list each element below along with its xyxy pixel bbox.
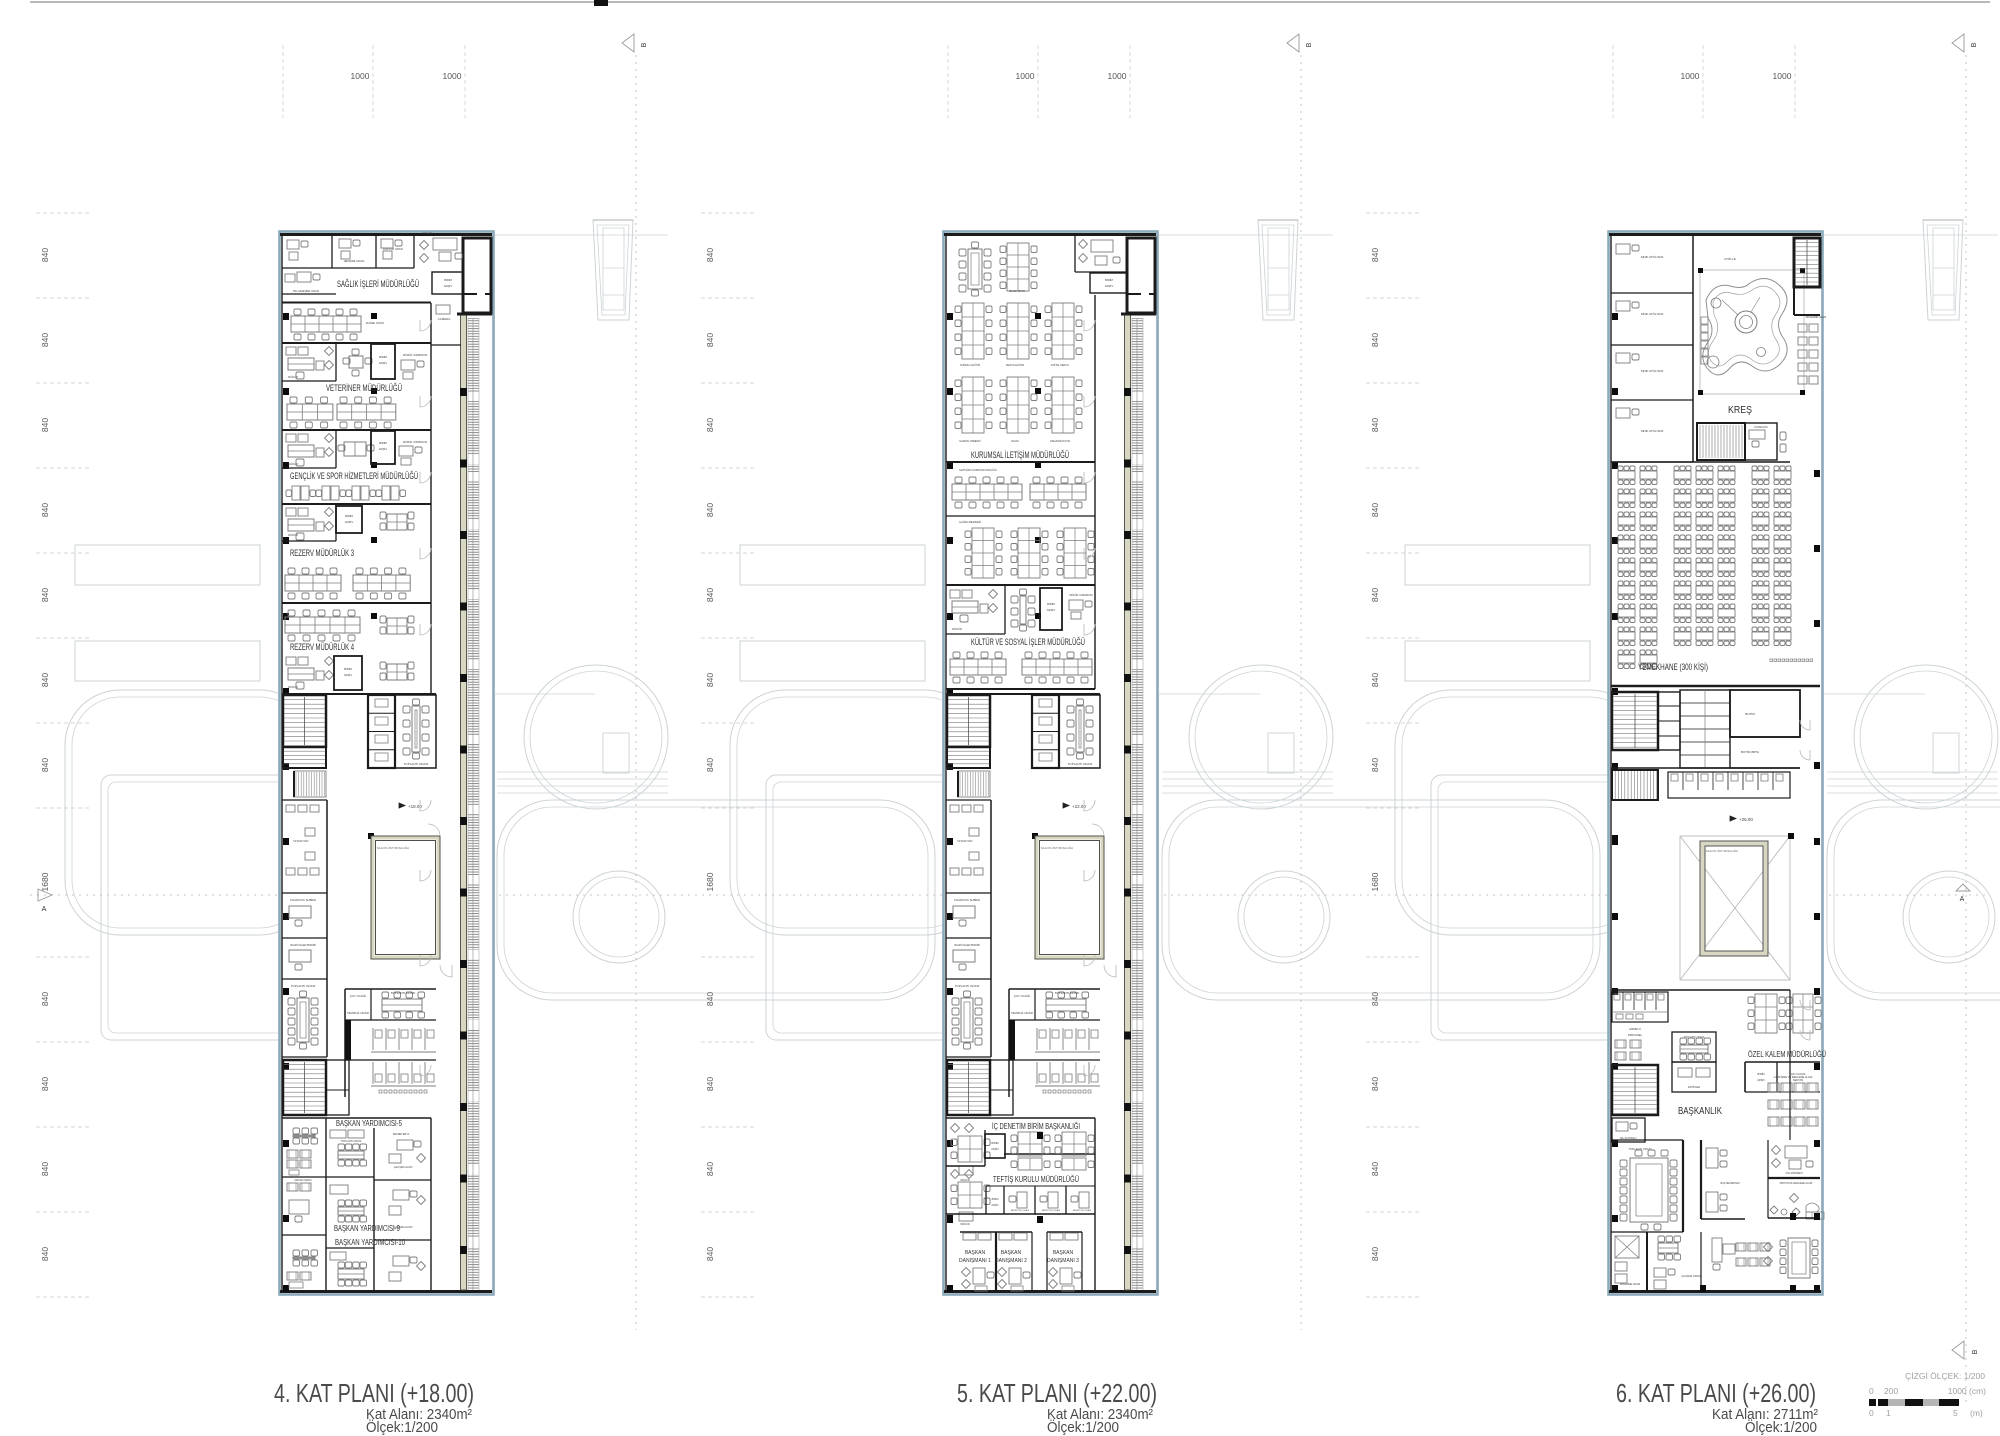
svg-text:ARŞİV: ARŞİV (379, 446, 388, 451)
svg-text:BİRİM: BİRİM (379, 440, 387, 445)
svg-text:840: 840 (40, 673, 50, 687)
svg-text:İÇ DENETİM BİRİM BAŞKANLIĞI: İÇ DENETİM BİRİM BAŞKANLIĞI (992, 1121, 1080, 1131)
svg-text:BİRİM: BİRİM (1105, 277, 1113, 282)
svg-text:840: 840 (705, 248, 715, 262)
svg-text:840: 840 (705, 503, 715, 517)
svg-text:840: 840 (705, 333, 715, 347)
svg-text:DANIŞMANI 1: DANIŞMANI 1 (959, 1258, 991, 1264)
svg-text:ÇİZGİ ÖLÇEK: 1/200: ÇİZGİ ÖLÇEK: 1/200 (1905, 1371, 1985, 1381)
svg-text:840: 840 (1370, 248, 1380, 262)
svg-text:BAŞKAN: BAŞKAN (1053, 1250, 1074, 1256)
svg-text:1000 (cm): 1000 (cm) (1948, 1386, 1986, 1396)
svg-text:KIZILAY: KIZILAY (422, 231, 432, 235)
svg-text:SAĞLIK İŞLERİ MÜDÜRLÜĞÜ: SAĞLIK İŞLERİ MÜDÜRLÜĞÜ (337, 279, 419, 289)
svg-text:BAŞKAN: BAŞKAN (965, 1250, 986, 1256)
svg-text:840: 840 (705, 673, 715, 687)
svg-text:Ölçek:1/200: Ölçek:1/200 (1745, 1418, 1817, 1436)
svg-text:SINIF ATÖLYESİ: SINIF ATÖLYESİ (1641, 428, 1664, 433)
svg-text:MÜFETTİŞ ODASI: MÜFETTİŞ ODASI (1042, 1209, 1061, 1212)
svg-text:840: 840 (705, 588, 715, 602)
svg-text:ARŞİV: ARŞİV (345, 519, 354, 524)
svg-text:BAŞKAN YARDIMCISI-10: BAŞKAN YARDIMCISI-10 (335, 1237, 405, 1247)
svg-text:ÇAY OCAĞI: ÇAY OCAĞI (350, 993, 367, 998)
svg-text:MÜDÜR: MÜDÜR (288, 375, 298, 379)
svg-text:MÜDÜR YARDIMCISI: MÜDÜR YARDIMCISI (403, 441, 428, 444)
svg-text:ORGANİZASYON: ORGANİZASYON (1050, 440, 1070, 443)
svg-text:ARŞİV: ARŞİV (444, 283, 453, 288)
svg-text:KURUMSAL İLETİŞİM MÜDÜRLÜĞÜ: KURUMSAL İLETİŞİM MÜDÜRLÜĞÜ (971, 450, 1069, 460)
svg-text:MÜDÜR: MÜDÜR (952, 627, 962, 631)
svg-text:MÜDÜR: MÜDÜR (288, 685, 298, 689)
svg-text:DİNLENME ODASI: DİNLENME ODASI (1620, 1283, 1641, 1286)
svg-text:1000: 1000 (443, 71, 462, 81)
svg-text:DİNLENME ODASI: DİNLENME ODASI (1806, 316, 1827, 319)
svg-text:MÜDÜR: MÜDÜR (960, 1223, 969, 1226)
svg-text:SÜREKLİ EĞİTİM: SÜREKLİ EĞİTİM (960, 364, 980, 367)
svg-text:BİRİM: BİRİM (1047, 601, 1055, 606)
svg-text:ARŞİV: ARŞİV (344, 672, 353, 677)
svg-text:1: 1 (1886, 1408, 1891, 1418)
svg-text:İDARİ OFİS: İDARİ OFİS (1009, 288, 1025, 293)
svg-text:MEDYA EĞİTİM: MEDYA EĞİTİM (1006, 364, 1024, 367)
svg-text:TOPLANTI ODASI: TOPLANTI ODASI (404, 762, 429, 766)
svg-text:840: 840 (1370, 758, 1380, 772)
svg-text:ÖZL.MÜDİRESİ: ÖZL.MÜDİRESİ (1785, 1172, 1802, 1175)
svg-text:840: 840 (40, 758, 50, 772)
svg-text:+26.00: +26.00 (1739, 817, 1753, 822)
svg-text:DANIŞMANI 2: DANIŞMANI 2 (995, 1258, 1027, 1264)
svg-text:KONSOLOS: KONSOLOS (1754, 426, 1768, 429)
svg-text:İDARİ İŞLER BİRİMİ: İDARİ İŞLER BİRİMİ (290, 942, 316, 947)
svg-text:840: 840 (40, 503, 50, 517)
svg-text:840: 840 (1370, 1077, 1380, 1091)
svg-text:SINIF ATÖLYESİ: SINIF ATÖLYESİ (1641, 368, 1664, 373)
svg-text:CAMERA: CAMERA (438, 317, 451, 321)
svg-text:SEKRETERYA: SEKRETERYA (393, 1133, 410, 1136)
svg-text:ÇALIŞMA ALANI: ÇALIŞMA ALANI (394, 1166, 413, 1169)
svg-text:5. KAT PLANI (+22.00): 5. KAT PLANI (+22.00) (957, 1378, 1157, 1408)
svg-text:840: 840 (705, 758, 715, 772)
svg-text:İDARİ İŞLER BİRİMİ: İDARİ İŞLER BİRİMİ (954, 942, 980, 947)
svg-text:840: 840 (1370, 1162, 1380, 1176)
svg-text:SALON ÜST BOŞLUĞU: SALON ÜST BOŞLUĞU (1041, 845, 1073, 850)
svg-text:BİRİM: BİRİM (444, 277, 452, 282)
svg-text:ARŞİV: ARŞİV (379, 360, 388, 365)
svg-text:YEMEKHANE (300 KİŞİ): YEMEKHANE (300 KİŞİ) (1638, 662, 1708, 672)
svg-text:GENÇLİK VE SPOR HİZMETLERİ MÜD: GENÇLİK VE SPOR HİZMETLERİ MÜDÜRLÜĞÜ (290, 471, 418, 481)
svg-text:MÜDÜR YARDIMCISI: MÜDÜR YARDIMCISI (1069, 594, 1093, 597)
svg-text:KREŞ: KREŞ (1728, 405, 1752, 416)
svg-text:TOPLANTI ODASI: TOPLANTI ODASI (391, 991, 416, 995)
svg-text:(m): (m) (1970, 1408, 1983, 1418)
svg-text:840: 840 (705, 1162, 715, 1176)
svg-text:BAŞKAN YARDIMCISI-9: BAŞKAN YARDIMCISI-9 (334, 1223, 400, 1233)
svg-text:840: 840 (1370, 992, 1380, 1006)
svg-text:A: A (1960, 896, 1965, 903)
svg-text:B: B (1971, 42, 1978, 47)
svg-text:5: 5 (1953, 1408, 1958, 1418)
svg-text:840: 840 (40, 248, 50, 262)
svg-text:GÖRÜŞME VE BEKLEME ALANI: GÖRÜŞME VE BEKLEME ALANI (1774, 1075, 1813, 1079)
svg-text:ATÖLYE: ATÖLYE (1724, 257, 1735, 261)
svg-text:0: 0 (1869, 1408, 1874, 1418)
svg-text:BİRİM: BİRİM (379, 354, 387, 359)
svg-text:ÇALIŞMA ODASI: ÇALIŞMA ODASI (1681, 1275, 1701, 1278)
svg-text:BOTİM: BOTİM (1745, 711, 1755, 716)
svg-text:TEFTİŞ KURULU MÜDÜRLÜĞÜ: TEFTİŞ KURULU MÜDÜRLÜĞÜ (993, 1174, 1079, 1184)
svg-text:840: 840 (40, 992, 50, 1006)
svg-text:BİRİM: BİRİM (345, 513, 353, 518)
svg-text:840: 840 (705, 418, 715, 432)
svg-text:BAŞKAN YARDIMCISI-5: BAŞKAN YARDIMCISI-5 (336, 1118, 402, 1128)
svg-text:DANIŞMANI 3: DANIŞMANI 3 (1047, 1258, 1079, 1264)
svg-text:ÇAĞRI MERKEZİ: ÇAĞRI MERKEZİ (959, 519, 981, 524)
svg-text:A: A (42, 906, 47, 913)
svg-text:B: B (1972, 1349, 1979, 1354)
svg-text:840: 840 (1370, 333, 1380, 347)
svg-text:1000: 1000 (1108, 71, 1127, 81)
svg-text:1680: 1680 (40, 872, 50, 891)
svg-text:4. KAT PLANI (+18.00): 4. KAT PLANI (+18.00) (274, 1378, 474, 1408)
svg-text:TOPLANTI ODASI: TOPLANTI ODASI (1068, 762, 1093, 766)
svg-text:GAZETE HABERCİ: GAZETE HABERCİ (959, 440, 981, 443)
svg-text:ÇAY OCAĞI: ÇAY OCAĞI (1014, 993, 1031, 998)
svg-text:ARŞİV: ARŞİV (1105, 283, 1114, 288)
svg-text:MÜFETTİŞ ODASI: MÜFETTİŞ ODASI (1073, 1209, 1092, 1212)
svg-text:1680: 1680 (1370, 872, 1380, 891)
svg-text:İSTASYON: İSTASYON (958, 838, 973, 843)
svg-text:840: 840 (1370, 673, 1380, 687)
svg-text:ARŞİV: ARŞİV (1047, 607, 1056, 612)
svg-text:BİRİM: BİRİM (992, 1198, 999, 1201)
svg-text:PERSONEL: PERSONEL (1628, 1033, 1643, 1037)
svg-text:DAİRE OFİSİ: DAİRE OFİSİ (366, 320, 384, 325)
svg-text:BOTİM (BPS): BOTİM (BPS) (1741, 749, 1759, 754)
svg-text:840: 840 (705, 1247, 715, 1261)
svg-text:TEMİZLİK ODASI: TEMİZLİK ODASI (347, 1010, 369, 1015)
svg-text:BAŞKANLIK: BAŞKANLIK (1678, 1106, 1722, 1117)
svg-text:2023/4: 2023/4 (1011, 440, 1019, 443)
svg-text:BAŞ SEKRETERİ: BAŞ SEKRETERİ (1721, 1182, 1740, 1185)
svg-text:ÖZEL KALEM MÜDÜRLÜĞÜ: ÖZEL KALEM MÜDÜRLÜĞÜ (1748, 1049, 1826, 1059)
svg-text:6. KAT PLANI (+26.00): 6. KAT PLANI (+26.00) (1616, 1378, 1816, 1408)
svg-text:840: 840 (1370, 503, 1380, 517)
svg-text:840: 840 (705, 992, 715, 1006)
svg-text:KÜLTÜR VE SOSYAL İŞLER MÜDÜRLÜ: KÜLTÜR VE SOSYAL İŞLER MÜDÜRLÜĞÜ (971, 637, 1085, 647)
svg-text:MÜDÜR: MÜDÜR (288, 533, 298, 537)
svg-text:TOPLANTI ODASI: TOPLANTI ODASI (955, 984, 980, 988)
svg-text:VETERİNER MÜDÜRLÜĞÜ: VETERİNER MÜDÜRLÜĞÜ (326, 383, 402, 393)
svg-text:1000: 1000 (1773, 71, 1792, 81)
svg-text:TOPLANTI ODASI: TOPLANTI ODASI (341, 1140, 362, 1143)
svg-text:TOPLANTI ODASI: TOPLANTI ODASI (1055, 991, 1080, 995)
svg-text:SINIF ATÖLYESİ: SINIF ATÖLYESİ (1641, 311, 1664, 316)
svg-text:İSTASYON: İSTASYON (294, 838, 309, 843)
svg-text:MÜDÜR YARDIMCISI: MÜDÜR YARDIMCISI (403, 354, 428, 357)
svg-text:1000: 1000 (351, 71, 370, 81)
svg-text:MAKAM ODASI: MAKAM ODASI (295, 1179, 312, 1182)
svg-text:TOPLANTI ODASI: TOPLANTI ODASI (291, 984, 316, 988)
svg-text:MÜDÜR: MÜDÜR (288, 462, 298, 466)
svg-text:840: 840 (705, 1077, 715, 1091)
svg-text:REZERV MÜDÜRLÜK 3: REZERV MÜDÜRLÜK 3 (290, 548, 354, 558)
svg-text:DOKTOR ODASI: DOKTOR ODASI (383, 247, 403, 251)
svg-text:1000: 1000 (1681, 71, 1700, 81)
svg-text:REZERV MÜDÜRLÜK 4: REZERV MÜDÜRLÜK 4 (290, 642, 354, 652)
svg-text:BİRİM: BİRİM (344, 666, 352, 671)
svg-text:1000: 1000 (1016, 71, 1035, 81)
svg-text:DİJİTAL MEDYA: DİJİTAL MEDYA (1051, 364, 1069, 367)
svg-text:840: 840 (40, 1162, 50, 1176)
svg-text:TAHAKKUK ŞUBESİ: TAHAKKUK ŞUBESİ (954, 897, 980, 902)
svg-text:200: 200 (1884, 1386, 1898, 1396)
svg-text:Ölçek:1/200: Ölçek:1/200 (1047, 1418, 1119, 1436)
svg-text:1680: 1680 (705, 872, 715, 891)
svg-text:B: B (1306, 42, 1313, 47)
svg-text:0: 0 (1869, 1386, 1874, 1396)
svg-text:SINIF ATÖLYESİ: SINIF ATÖLYESİ (1641, 254, 1664, 259)
svg-text:840: 840 (40, 1077, 50, 1091)
svg-text:840: 840 (1370, 588, 1380, 602)
svg-text:B: B (641, 42, 648, 47)
svg-text:TAHAKKUK ŞUBESİ: TAHAKKUK ŞUBESİ (290, 897, 316, 902)
svg-text:840: 840 (40, 588, 50, 602)
svg-text:Ölçek:1/200: Ölçek:1/200 (366, 1418, 438, 1436)
svg-text:840: 840 (40, 418, 50, 432)
svg-text:SALON ÜST BOŞLUĞU: SALON ÜST BOŞLUĞU (1706, 848, 1738, 853)
svg-text:840: 840 (1370, 1247, 1380, 1261)
svg-text:BAŞKAN: BAŞKAN (1001, 1250, 1022, 1256)
svg-text:TEMİZLİK ODASI: TEMİZLİK ODASI (1011, 1010, 1033, 1015)
svg-text:SALON ÜST BOŞLUĞU: SALON ÜST BOŞLUĞU (377, 845, 409, 850)
svg-text:840: 840 (40, 333, 50, 347)
svg-text:ARŞİV: ARŞİV (991, 1204, 999, 1207)
svg-text:840: 840 (1370, 418, 1380, 432)
svg-text:MÜFETTİŞ ODASI: MÜFETTİŞ ODASI (1011, 1209, 1030, 1212)
svg-text:PROTOKOL BEKLEME ALANI: PROTOKOL BEKLEME ALANI (1780, 1182, 1813, 1185)
svg-text:840: 840 (40, 1247, 50, 1261)
